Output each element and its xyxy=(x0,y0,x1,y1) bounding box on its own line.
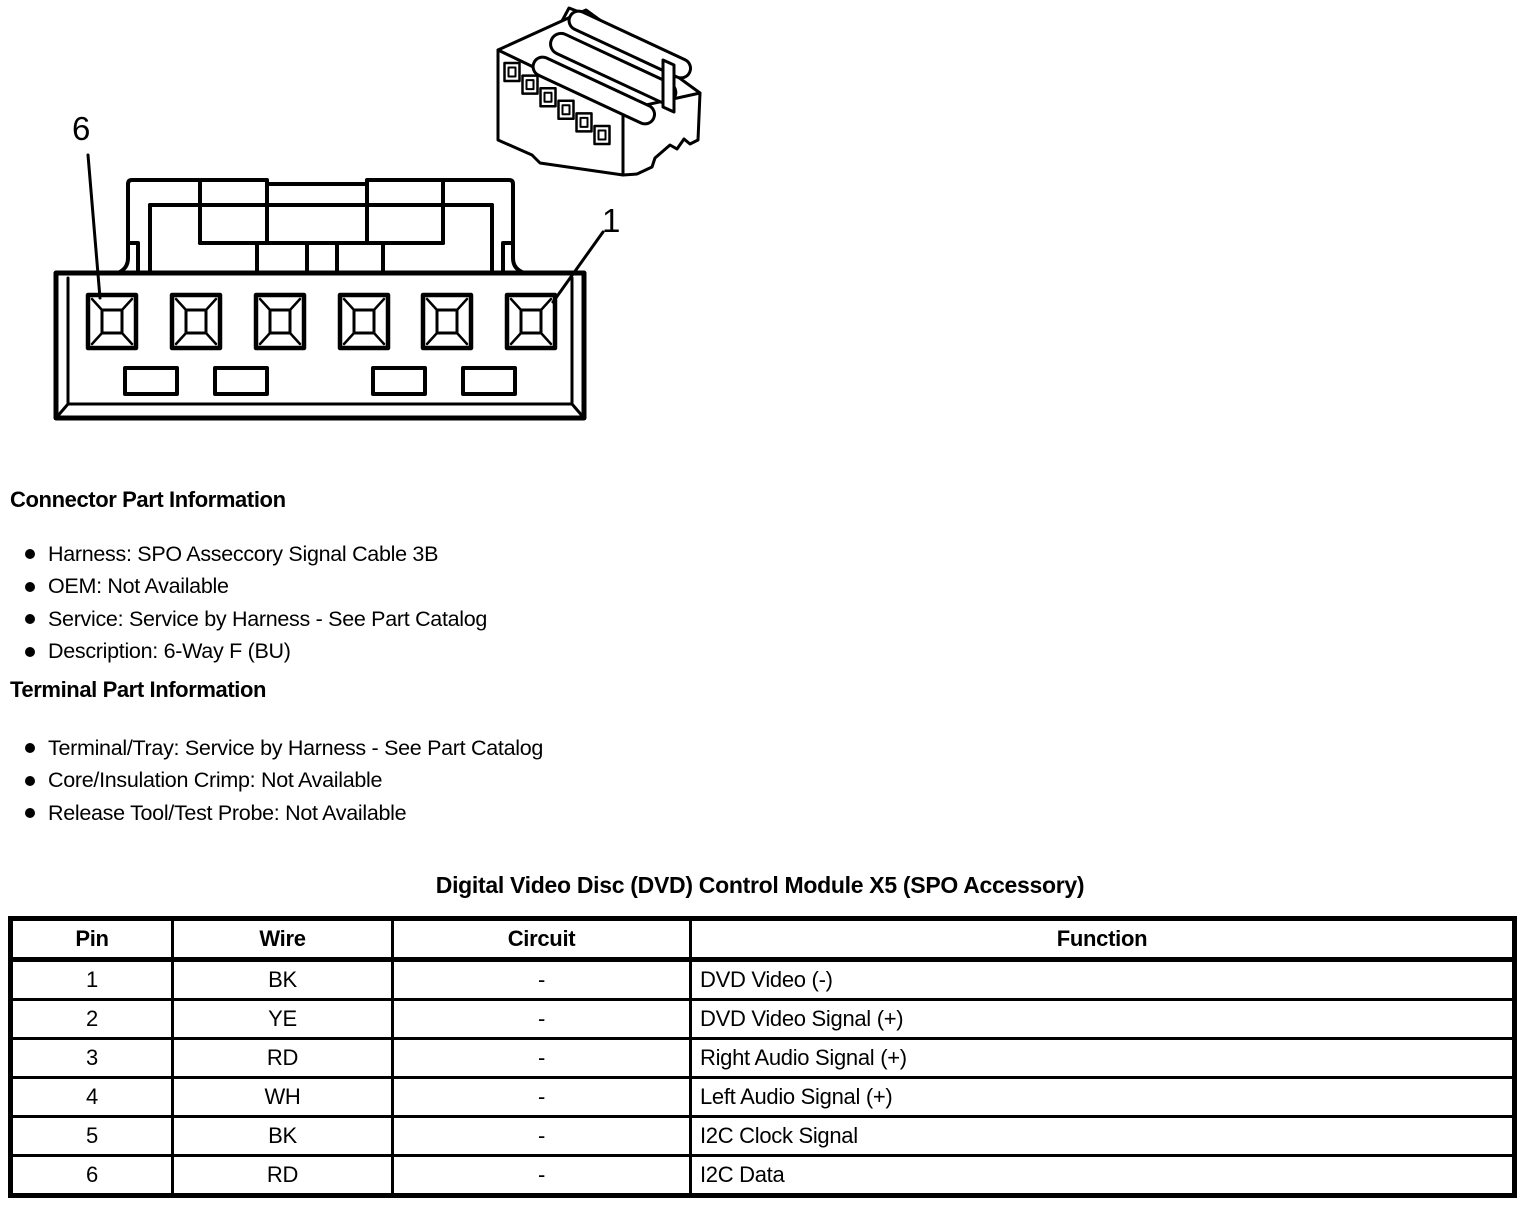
pin-cell: 4 xyxy=(11,1078,173,1117)
table-row: 2 YE - DVD Video Signal (+) xyxy=(11,1000,1515,1039)
wire-cell: WH xyxy=(173,1078,393,1117)
terminal-part-info-heading: Terminal Part Information xyxy=(10,677,266,703)
connector-part-info-heading: Connector Part Information xyxy=(10,487,286,513)
list-item: Terminal/Tray: Service by Harness - See … xyxy=(25,732,543,765)
wire-cell: RD xyxy=(173,1039,393,1078)
list-item: Service: Service by Harness - See Part C… xyxy=(25,603,487,636)
bullet-icon xyxy=(25,647,35,657)
wire-column-header: Wire xyxy=(173,919,393,960)
list-item: Release Tool/Test Probe: Not Available xyxy=(25,797,543,830)
list-item-text: Release Tool/Test Probe: Not Available xyxy=(48,801,406,826)
service-manual-page: { "diagram": { "pin_label_left": "6", "p… xyxy=(0,0,1520,1220)
connector-part-info-list: Harness: SPO Asseccory Signal Cable 3B O… xyxy=(25,538,487,668)
circuit-cell: - xyxy=(393,960,691,1000)
list-item: Description: 6-Way F (BU) xyxy=(25,636,487,669)
wire-cell: BK xyxy=(173,1117,393,1156)
function-cell: I2C Clock Signal xyxy=(691,1117,1515,1156)
pin-cell: 1 xyxy=(11,960,173,1000)
table-row: 5 BK - I2C Clock Signal xyxy=(11,1117,1515,1156)
wire-cell: YE xyxy=(173,1000,393,1039)
list-item-text: Service: Service by Harness - See Part C… xyxy=(48,607,487,632)
pin-cell: 3 xyxy=(11,1039,173,1078)
list-item: Core/Insulation Crimp: Not Available xyxy=(25,765,543,798)
bullet-icon xyxy=(25,743,35,753)
circuit-cell: - xyxy=(393,1117,691,1156)
function-cell: I2C Data xyxy=(691,1156,1515,1196)
circuit-cell: - xyxy=(393,1156,691,1196)
circuit-cell: - xyxy=(393,1000,691,1039)
wire-cell: RD xyxy=(173,1156,393,1196)
bullet-icon xyxy=(25,614,35,624)
function-cell: DVD Video Signal (+) xyxy=(691,1000,1515,1039)
list-item-text: Harness: SPO Asseccory Signal Cable 3B xyxy=(48,542,438,567)
list-item: OEM: Not Available xyxy=(25,571,487,604)
bullet-icon xyxy=(25,582,35,592)
table-row: 6 RD - I2C Data xyxy=(11,1156,1515,1196)
circuit-cell: - xyxy=(393,1039,691,1078)
wire-cell: BK xyxy=(173,960,393,1000)
circuit-cell: - xyxy=(393,1078,691,1117)
pin-6-leader-line xyxy=(88,155,100,298)
connector-front-view-drawing xyxy=(30,100,650,430)
pin-6-label: 6 xyxy=(72,112,90,145)
function-column-header: Function xyxy=(691,919,1515,960)
circuit-column-header: Circuit xyxy=(393,919,691,960)
terminal-part-info-list: Terminal/Tray: Service by Harness - See … xyxy=(25,732,543,830)
function-cell: Left Audio Signal (+) xyxy=(691,1078,1515,1117)
pin-table-title: Digital Video Disc (DVD) Control Module … xyxy=(8,872,1512,899)
table-header-row: Pin Wire Circuit Function xyxy=(11,919,1515,960)
bullet-icon xyxy=(25,549,35,559)
list-item: Harness: SPO Asseccory Signal Cable 3B xyxy=(25,538,487,571)
table-row: 3 RD - Right Audio Signal (+) xyxy=(11,1039,1515,1078)
bullet-icon xyxy=(25,808,35,818)
pin-cell: 5 xyxy=(11,1117,173,1156)
function-cell: DVD Video (-) xyxy=(691,960,1515,1000)
pin-cell: 2 xyxy=(11,1000,173,1039)
list-item-text: OEM: Not Available xyxy=(48,574,229,599)
pin-1-label: 1 xyxy=(602,204,620,237)
pin-function-table: Pin Wire Circuit Function 1 BK - DVD Vid… xyxy=(8,916,1517,1198)
list-item-text: Description: 6-Way F (BU) xyxy=(48,639,291,664)
list-item-text: Core/Insulation Crimp: Not Available xyxy=(48,768,382,793)
list-item-text: Terminal/Tray: Service by Harness - See … xyxy=(48,736,543,761)
table-row: 1 BK - DVD Video (-) xyxy=(11,960,1515,1000)
pin-1-leader-line xyxy=(553,232,603,302)
table-row: 4 WH - Left Audio Signal (+) xyxy=(11,1078,1515,1117)
pin-cell: 6 xyxy=(11,1156,173,1196)
pin-column-header: Pin xyxy=(11,919,173,960)
bullet-icon xyxy=(25,776,35,786)
function-cell: Right Audio Signal (+) xyxy=(691,1039,1515,1078)
